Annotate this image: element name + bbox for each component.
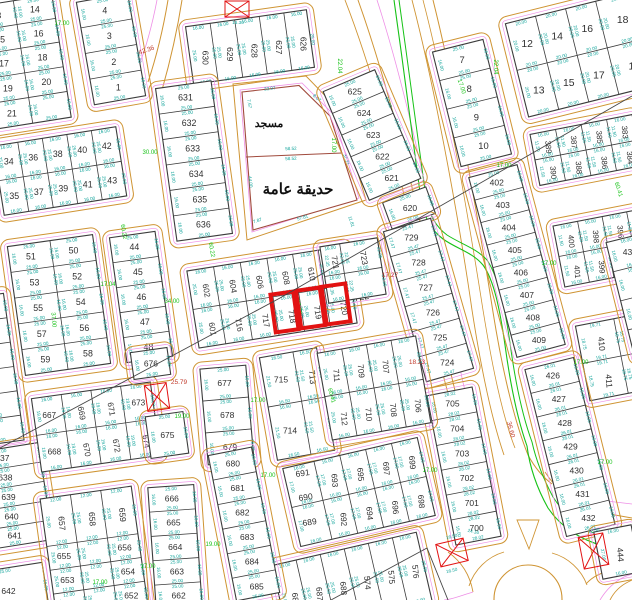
- svg-text:673: 673: [132, 398, 146, 407]
- svg-text:684: 684: [245, 557, 259, 567]
- svg-text:7: 7: [459, 54, 464, 65]
- svg-text:52: 52: [72, 271, 82, 281]
- svg-text:642: 642: [1, 586, 15, 596]
- svg-text:680: 680: [226, 459, 240, 469]
- svg-text:411: 411: [603, 374, 614, 389]
- svg-text:677: 677: [217, 378, 231, 388]
- svg-text:25.00: 25.00: [168, 535, 180, 541]
- svg-text:727: 727: [419, 282, 433, 292]
- svg-text:675: 675: [160, 430, 174, 440]
- svg-text:687: 687: [314, 587, 324, 600]
- svg-text:25.00: 25.00: [167, 510, 179, 516]
- svg-text:10: 10: [478, 140, 488, 151]
- svg-text:678: 678: [220, 410, 234, 420]
- svg-text:17.00: 17.00: [422, 468, 438, 474]
- svg-text:2: 2: [111, 57, 116, 67]
- svg-text:58.52: 58.52: [285, 156, 297, 162]
- svg-text:17.00: 17.00: [54, 21, 70, 27]
- svg-text:405: 405: [508, 245, 522, 255]
- svg-text:16.00: 16.00: [247, 407, 253, 419]
- svg-text:664: 664: [168, 542, 182, 552]
- svg-text:728: 728: [411, 257, 425, 267]
- svg-text:15: 15: [0, 34, 5, 44]
- svg-text:430: 430: [569, 465, 583, 475]
- svg-text:16.30: 16.30: [232, 20, 244, 25]
- svg-text:409: 409: [532, 335, 546, 345]
- svg-text:635: 635: [192, 194, 207, 204]
- svg-text:19.00: 19.00: [205, 542, 221, 548]
- svg-text:17: 17: [0, 59, 9, 69]
- svg-text:9: 9: [474, 111, 479, 122]
- svg-text:711: 711: [331, 369, 341, 383]
- svg-text:17.00: 17.00: [250, 398, 266, 404]
- svg-text:16: 16: [34, 28, 44, 38]
- svg-text:45: 45: [133, 267, 143, 277]
- svg-text:444: 444: [615, 547, 626, 562]
- svg-text:659: 659: [117, 507, 128, 522]
- svg-text:25.00: 25.00: [170, 559, 182, 565]
- svg-text:13: 13: [0, 11, 1, 21]
- svg-text:16.00: 16.00: [209, 442, 215, 454]
- svg-text:623: 623: [366, 130, 380, 140]
- svg-text:18.23: 18.23: [409, 359, 426, 366]
- svg-text:25.00: 25.00: [172, 583, 184, 589]
- svg-text:16.00: 16.00: [151, 494, 157, 506]
- svg-text:1: 1: [116, 82, 121, 92]
- svg-text:626: 626: [299, 37, 309, 51]
- svg-text:575: 575: [386, 570, 396, 585]
- svg-text:25.00: 25.00: [220, 399, 232, 405]
- svg-text:13: 13: [533, 85, 545, 96]
- svg-text:12: 12: [521, 39, 533, 50]
- svg-text:410: 410: [596, 336, 607, 351]
- svg-text:16.00: 16.00: [158, 591, 164, 600]
- svg-text:16.00: 16.00: [156, 567, 162, 579]
- svg-text:633: 633: [185, 143, 200, 153]
- svg-text:656: 656: [118, 543, 132, 553]
- svg-text:14: 14: [30, 5, 40, 15]
- svg-text:4: 4: [102, 6, 107, 16]
- svg-text:16.00: 16.00: [244, 375, 250, 387]
- svg-text:686: 686: [290, 592, 300, 600]
- svg-text:14: 14: [551, 31, 563, 42]
- svg-text:662: 662: [172, 591, 186, 600]
- svg-text:17.00: 17.00: [92, 580, 108, 586]
- svg-text:620: 620: [403, 203, 417, 213]
- svg-text:407: 407: [520, 290, 534, 300]
- svg-text:40: 40: [77, 145, 87, 155]
- svg-text:400: 400: [566, 234, 576, 248]
- svg-text:408: 408: [526, 312, 540, 322]
- svg-text:710: 710: [363, 407, 373, 422]
- svg-text:16.00: 16.00: [153, 518, 159, 530]
- svg-text:658: 658: [87, 512, 98, 527]
- svg-text:654: 654: [121, 566, 135, 576]
- svg-text:17.00: 17.00: [260, 473, 276, 479]
- svg-text:51: 51: [26, 252, 36, 262]
- svg-text:712: 712: [339, 412, 349, 427]
- svg-text:25.00: 25.00: [223, 431, 235, 437]
- svg-text:726: 726: [426, 307, 440, 317]
- svg-text:17: 17: [593, 70, 605, 81]
- svg-text:25.00: 25.00: [217, 367, 229, 373]
- svg-text:625: 625: [348, 86, 362, 96]
- svg-text:709: 709: [356, 364, 366, 379]
- svg-text:19.00: 19.00: [174, 414, 190, 420]
- svg-text:634: 634: [189, 169, 204, 179]
- svg-text:22.04: 22.04: [492, 59, 498, 75]
- svg-text:16.00: 16.00: [193, 515, 199, 527]
- svg-text:433: 433: [623, 247, 632, 257]
- svg-text:3: 3: [107, 31, 112, 41]
- svg-text:مسجد: مسجد: [255, 118, 284, 130]
- svg-text:58: 58: [83, 349, 93, 359]
- svg-text:16: 16: [581, 24, 593, 35]
- svg-text:20: 20: [42, 77, 52, 87]
- svg-text:576: 576: [410, 565, 420, 580]
- svg-text:683: 683: [240, 532, 254, 542]
- svg-text:628: 628: [250, 44, 260, 58]
- svg-text:685: 685: [250, 581, 264, 591]
- svg-text:621: 621: [385, 173, 399, 183]
- svg-text:18: 18: [617, 15, 629, 26]
- svg-text:655: 655: [57, 551, 71, 561]
- svg-text:632: 632: [182, 118, 197, 128]
- svg-text:36: 36: [28, 153, 38, 163]
- svg-text:21: 21: [7, 109, 17, 119]
- svg-text:427: 427: [552, 394, 566, 404]
- svg-text:624: 624: [357, 108, 371, 118]
- svg-text:701: 701: [465, 498, 479, 508]
- svg-text:46: 46: [137, 292, 147, 302]
- svg-text:702: 702: [460, 473, 474, 483]
- svg-text:35: 35: [9, 191, 19, 201]
- svg-text:622: 622: [375, 151, 389, 161]
- svg-text:714: 714: [283, 426, 297, 436]
- svg-text:432: 432: [581, 513, 595, 523]
- svg-text:697: 697: [381, 461, 391, 476]
- svg-text:699: 699: [407, 455, 417, 470]
- svg-text:431: 431: [575, 489, 589, 499]
- svg-text:19: 19: [3, 83, 13, 93]
- svg-text:22.04: 22.04: [336, 58, 342, 74]
- svg-text:17.27: 17.27: [382, 272, 399, 279]
- svg-text:18: 18: [38, 53, 48, 63]
- svg-text:55: 55: [33, 303, 43, 313]
- svg-text:44: 44: [130, 242, 140, 252]
- svg-text:15: 15: [563, 78, 575, 89]
- svg-text:57: 57: [37, 329, 47, 339]
- svg-text:426: 426: [546, 370, 560, 380]
- svg-text:694: 694: [364, 506, 374, 521]
- svg-text:43: 43: [107, 176, 117, 186]
- svg-text:54: 54: [76, 297, 86, 307]
- svg-text:39: 39: [58, 183, 68, 193]
- svg-text:627: 627: [274, 40, 284, 54]
- svg-text:631: 631: [178, 92, 193, 102]
- svg-text:715: 715: [274, 374, 288, 384]
- svg-text:398: 398: [591, 230, 601, 244]
- svg-text:428: 428: [558, 418, 572, 428]
- svg-text:706: 706: [413, 399, 423, 414]
- svg-text:8: 8: [467, 83, 472, 94]
- svg-text:34.00: 34.00: [164, 299, 180, 305]
- svg-text:693: 693: [329, 473, 339, 488]
- svg-text:663: 663: [170, 566, 184, 576]
- svg-text:681: 681: [231, 483, 245, 493]
- svg-text:629: 629: [225, 47, 235, 61]
- svg-text:17.00: 17.00: [541, 261, 557, 267]
- svg-text:25.00: 25.00: [165, 486, 177, 492]
- svg-text:665: 665: [166, 518, 180, 528]
- svg-text:25.00: 25.00: [0, 157, 5, 170]
- svg-text:17.00: 17.00: [330, 137, 336, 153]
- svg-text:34: 34: [4, 157, 14, 167]
- svg-text:47: 47: [140, 317, 150, 327]
- svg-text:729: 729: [404, 232, 418, 242]
- svg-text:58.52: 58.52: [285, 146, 297, 152]
- svg-text:50: 50: [69, 246, 79, 256]
- svg-text:713: 713: [307, 370, 318, 385]
- svg-text:707: 707: [380, 360, 390, 375]
- svg-text:704: 704: [450, 424, 464, 434]
- svg-text:17.00: 17.00: [597, 460, 613, 466]
- svg-text:696: 696: [390, 500, 400, 515]
- svg-text:37: 37: [34, 187, 44, 197]
- svg-text:698: 698: [416, 494, 426, 509]
- svg-text:406: 406: [514, 267, 528, 277]
- svg-text:25.79: 25.79: [171, 379, 188, 386]
- svg-text:404: 404: [502, 222, 516, 232]
- svg-text:16.00: 16.00: [203, 379, 209, 391]
- svg-text:19: 19: [629, 62, 632, 73]
- svg-text:653: 653: [60, 575, 74, 585]
- svg-text:401: 401: [572, 265, 582, 279]
- svg-text:574: 574: [362, 576, 372, 591]
- svg-text:652: 652: [124, 590, 138, 600]
- svg-text:666: 666: [165, 493, 179, 503]
- svg-text:703: 703: [455, 448, 469, 458]
- svg-text:657: 657: [56, 516, 67, 531]
- svg-text:16.00: 16.00: [199, 588, 205, 600]
- svg-text:682: 682: [235, 508, 249, 518]
- svg-text:630: 630: [200, 51, 210, 65]
- svg-text:724: 724: [440, 357, 454, 367]
- svg-text:42: 42: [102, 141, 112, 151]
- svg-text:حديقة عامة: حديقة عامة: [263, 181, 334, 198]
- svg-text:16.00: 16.00: [197, 564, 203, 576]
- svg-text:16.00: 16.00: [154, 542, 160, 554]
- svg-text:30.00: 30.00: [142, 150, 158, 156]
- svg-text:59: 59: [40, 355, 50, 365]
- svg-text:41: 41: [83, 179, 93, 189]
- svg-text:16.00: 16.00: [192, 491, 198, 503]
- svg-text:16.00: 16.00: [195, 539, 201, 551]
- svg-text:725: 725: [433, 332, 447, 342]
- svg-text:705: 705: [445, 399, 459, 409]
- svg-text:689: 689: [302, 516, 318, 528]
- svg-text:429: 429: [564, 442, 578, 452]
- svg-text:56: 56: [79, 323, 89, 333]
- svg-text:708: 708: [388, 403, 398, 418]
- svg-text:17.04: 17.04: [100, 282, 116, 288]
- svg-text:691: 691: [295, 467, 311, 479]
- svg-text:690: 690: [298, 491, 314, 503]
- svg-text:402: 402: [490, 177, 504, 187]
- svg-text:668: 668: [48, 447, 62, 456]
- svg-text:25.00: 25.00: [87, 595, 94, 600]
- svg-text:636: 636: [196, 220, 211, 230]
- svg-text:53: 53: [30, 277, 40, 287]
- svg-text:17.00: 17.00: [140, 564, 156, 570]
- svg-text:38: 38: [53, 149, 63, 159]
- svg-text:17.00: 17.00: [573, 360, 589, 366]
- svg-text:403: 403: [496, 200, 510, 210]
- svg-text:695: 695: [355, 467, 365, 482]
- svg-text:692: 692: [338, 512, 348, 527]
- svg-text:16.00: 16.00: [206, 411, 212, 423]
